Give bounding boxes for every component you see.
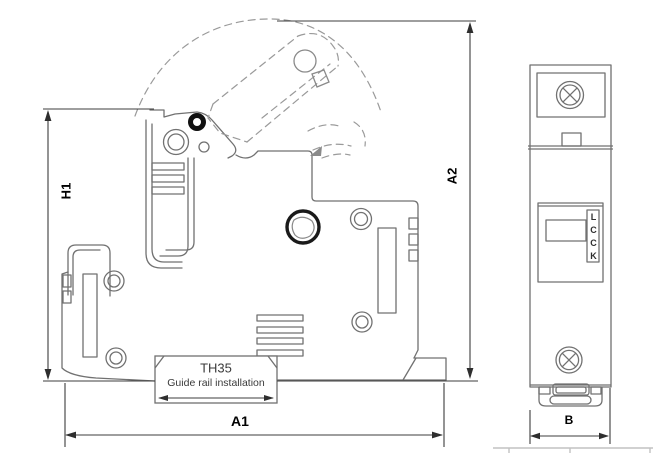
- dimension-arrowheads: [45, 22, 609, 439]
- cropped-table-edge: [493, 448, 653, 453]
- side-view-drawing: [62, 110, 446, 381]
- marking-letter: C: [590, 225, 597, 235]
- dimension-drawing-canvas: [0, 0, 653, 453]
- marking-letter: K: [590, 251, 597, 261]
- front-view-drawing: [528, 65, 613, 406]
- technical-drawing-page: H1 A2 A1 B TH35 Guide rail installation …: [0, 0, 653, 453]
- dimension-label-a1: A1: [231, 413, 249, 429]
- dimension-label-h1: H1: [59, 183, 74, 200]
- dimension-lines: [43, 21, 610, 447]
- rail-caption-label: Guide rail installation: [167, 377, 264, 389]
- open-carrier-dashed-outline: [135, 19, 381, 158]
- marking-letter: C: [590, 238, 597, 248]
- screw-cross-icon: [556, 82, 584, 374]
- rivet-icon: [104, 130, 372, 369]
- pivot-pin-icon: [191, 116, 204, 129]
- screw-head-icon: [287, 211, 319, 243]
- dimension-label-a2: A2: [445, 168, 460, 185]
- dimension-label-b: B: [565, 413, 574, 427]
- rail-model-label: TH35: [200, 361, 232, 376]
- product-marking-lcck: L C C K: [587, 210, 600, 262]
- carrier-thumb-grip-icon: [294, 50, 329, 156]
- marking-letter: L: [591, 212, 597, 222]
